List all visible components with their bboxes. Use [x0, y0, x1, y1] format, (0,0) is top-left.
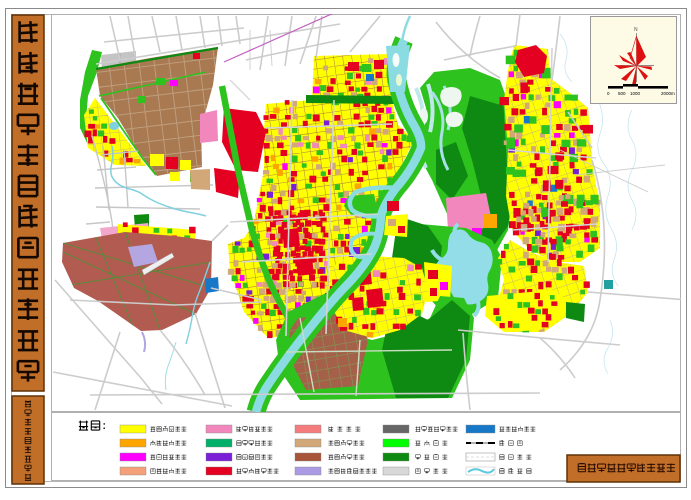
- svg-text:2000m: 2000m: [661, 91, 675, 96]
- svg-text:N: N: [634, 27, 638, 33]
- svg-text:1000: 1000: [630, 91, 641, 96]
- svg-text:500: 500: [618, 91, 626, 96]
